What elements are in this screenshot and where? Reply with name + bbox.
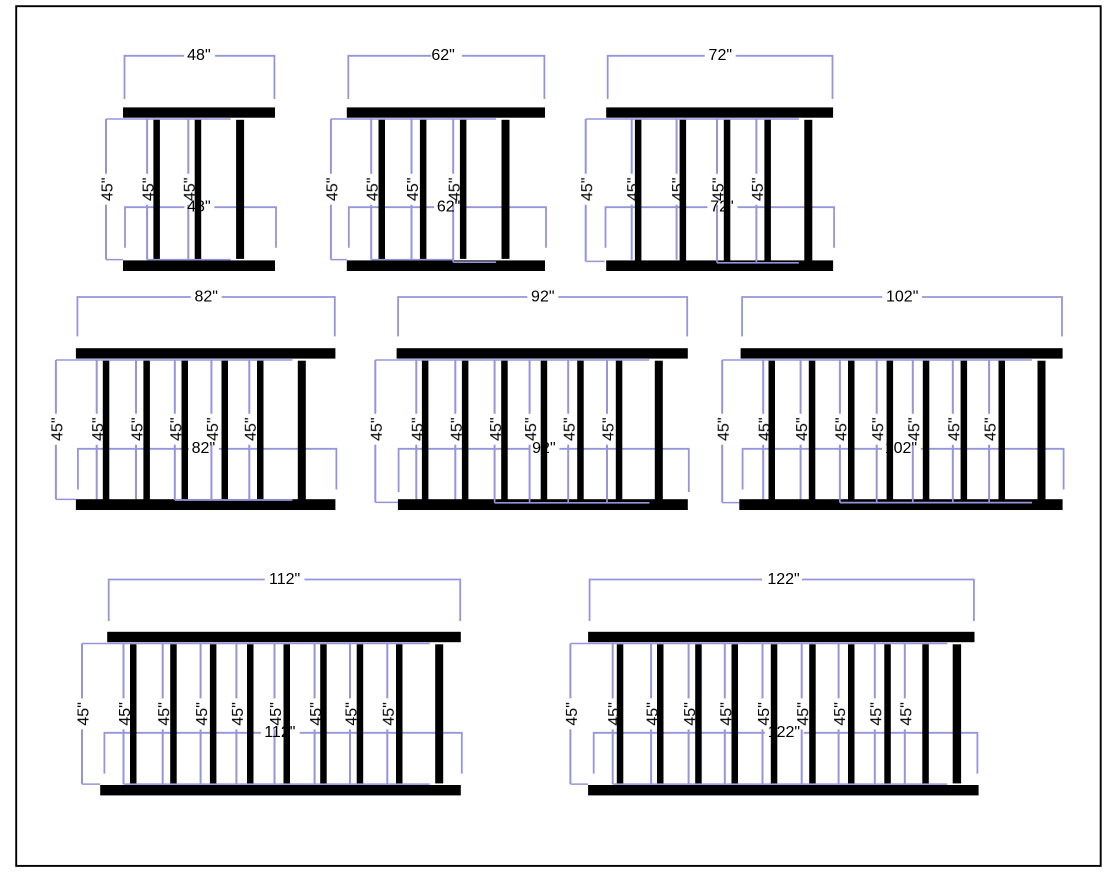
svg-text:45": 45" [832,702,849,725]
svg-text:82": 82" [192,440,215,457]
svg-text:102": 102" [886,288,918,305]
svg-text:45": 45" [868,702,885,725]
svg-text:45": 45" [715,417,732,440]
svg-text:45": 45" [833,417,850,440]
svg-text:45": 45" [756,702,773,725]
svg-text:45": 45" [324,178,341,201]
svg-text:45": 45" [268,702,285,725]
svg-text:45": 45" [794,417,811,440]
svg-text:45": 45" [230,702,247,725]
svg-text:45": 45" [982,417,999,440]
svg-text:72": 72" [709,47,732,64]
svg-text:45": 45" [75,702,92,725]
svg-text:82": 82" [194,288,217,305]
svg-text:45": 45" [906,417,923,440]
svg-text:122": 122" [767,571,799,588]
svg-text:62": 62" [431,47,454,64]
svg-text:92": 92" [531,288,554,305]
svg-text:112": 112" [269,571,300,588]
svg-text:45": 45" [381,702,398,725]
svg-text:45": 45" [898,702,915,725]
svg-text:45": 45" [561,417,578,440]
svg-text:45": 45" [946,417,963,440]
svg-text:45": 45" [523,417,540,440]
svg-text:112": 112" [264,724,295,741]
svg-text:45": 45" [194,702,211,725]
svg-text:45": 45" [99,178,116,201]
svg-text:45": 45" [870,417,887,440]
svg-text:45": 45" [750,178,767,201]
svg-text:45": 45" [600,417,617,440]
svg-text:45": 45" [205,417,222,440]
svg-text:45": 45" [405,178,422,201]
svg-text:45": 45" [564,702,581,725]
svg-text:45": 45" [579,178,596,201]
svg-text:48": 48" [187,47,210,64]
svg-text:45": 45" [369,417,386,440]
svg-text:45": 45" [49,417,66,440]
